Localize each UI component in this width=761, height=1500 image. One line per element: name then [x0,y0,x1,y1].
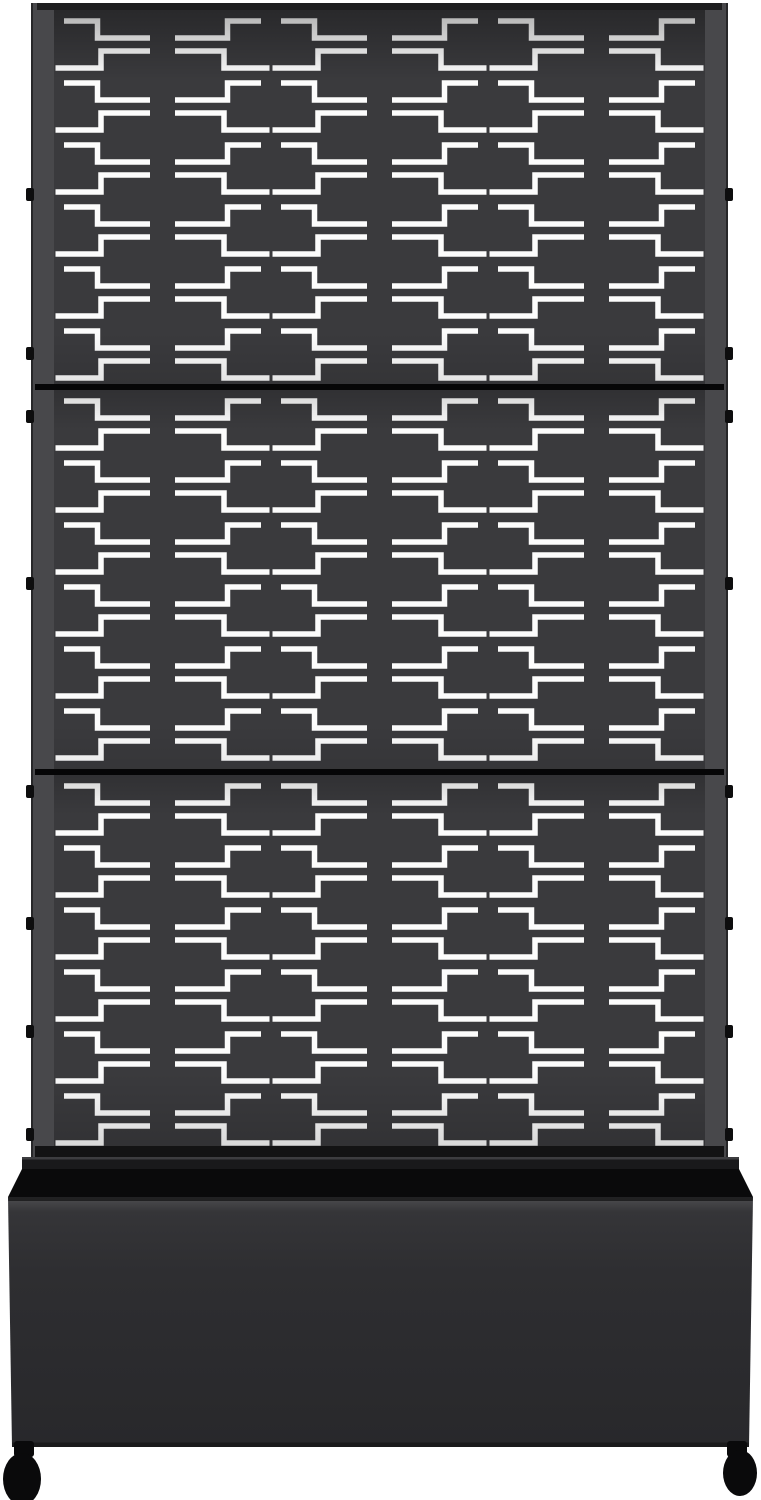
mount-tab [725,188,733,201]
product-image [0,0,761,1500]
mount-tab [725,1128,733,1141]
mount-tab [26,347,34,360]
planter-bottom-edge [12,1443,749,1448]
planter-front-top-edge [8,1197,753,1201]
mount-tab [725,785,733,798]
mount-tab [725,410,733,423]
mount-tab [26,577,34,590]
planter-front-face [8,1197,753,1447]
screen-panel-1 [54,10,705,384]
planter-opening [8,1169,753,1197]
caster-wheel-right [723,1441,757,1496]
mount-tab [725,1025,733,1038]
mount-tab [26,410,34,423]
mount-tab [725,577,733,590]
caster-wheel-left [3,1441,41,1500]
mount-tab [26,785,34,798]
planter-rim-highlight [22,1157,739,1160]
planter-box [0,1157,761,1500]
mount-tab [725,347,733,360]
mount-tab [26,917,34,930]
screen-panel-3 [54,775,705,1146]
screen-panel-2 [54,390,705,769]
screen-frame-top [37,3,722,10]
mount-tab [26,1025,34,1038]
mount-tab [26,188,34,201]
mount-tab [725,917,733,930]
privacy-screen [31,3,728,1160]
mount-tab [26,1128,34,1141]
